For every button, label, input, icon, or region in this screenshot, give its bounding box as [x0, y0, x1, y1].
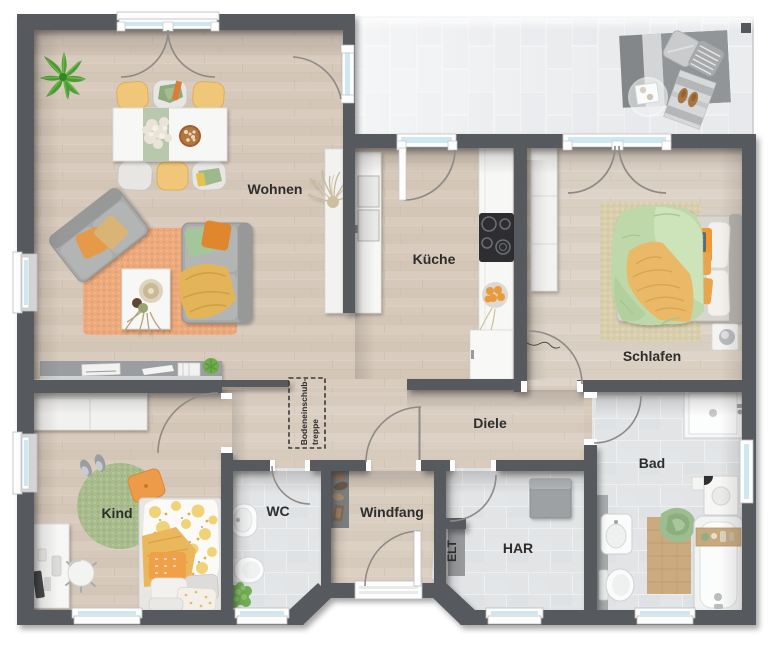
svg-text:Kind: Kind [101, 505, 132, 521]
svg-text:Wohnen: Wohnen [248, 181, 303, 197]
svg-text:ELT: ELT [445, 539, 459, 561]
svg-text:treppe: treppe [310, 419, 320, 445]
svg-text:HAR: HAR [503, 540, 533, 556]
svg-text:Küche: Küche [413, 251, 456, 267]
svg-text:Schlafen: Schlafen [623, 348, 681, 364]
svg-text:Windfang: Windfang [360, 504, 424, 520]
svg-text:Bad: Bad [639, 455, 665, 471]
svg-text:Diele: Diele [473, 415, 507, 431]
svg-text:Bodeneinschub-: Bodeneinschub- [299, 379, 309, 446]
svg-text:WC: WC [266, 503, 289, 519]
